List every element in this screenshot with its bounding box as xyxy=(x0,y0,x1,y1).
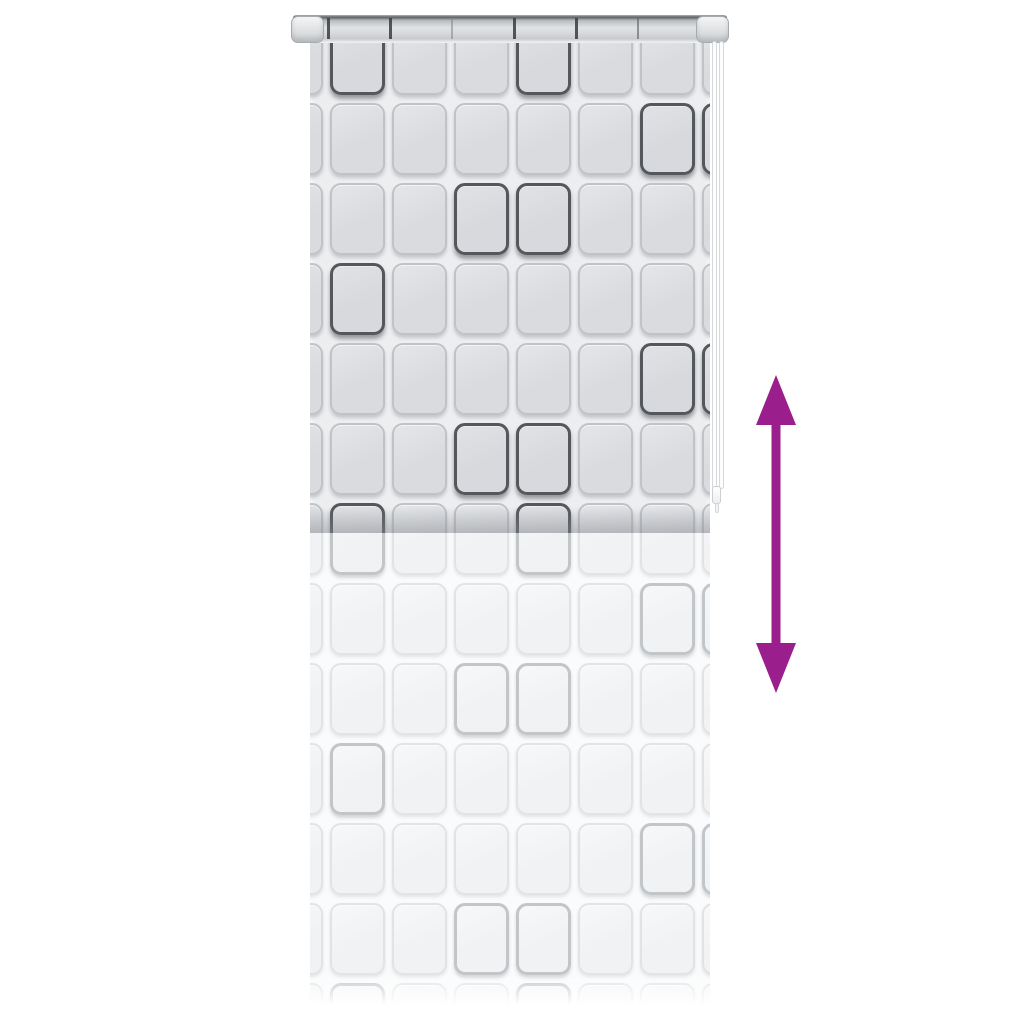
pattern-square xyxy=(640,343,695,415)
pattern-square xyxy=(516,983,571,1008)
rail-seam xyxy=(327,18,330,39)
pattern-square xyxy=(516,423,571,495)
pattern-square xyxy=(702,263,710,335)
pattern-square xyxy=(578,903,633,975)
pattern-square xyxy=(330,743,385,815)
pattern-square xyxy=(702,35,710,95)
pattern-square xyxy=(392,263,447,335)
pattern-square xyxy=(516,663,571,735)
pattern-square xyxy=(310,583,323,655)
pattern-square xyxy=(454,263,509,335)
pattern-square xyxy=(640,423,695,495)
pattern-square xyxy=(578,663,633,735)
rail-seam xyxy=(575,18,578,39)
pattern-square xyxy=(702,423,710,495)
rail-seam xyxy=(451,18,453,39)
pattern-square xyxy=(702,103,710,175)
pattern-square xyxy=(330,663,385,735)
pattern-square xyxy=(516,743,571,815)
pattern-square xyxy=(392,743,447,815)
pull-cord xyxy=(720,42,723,488)
pattern-square xyxy=(310,663,323,735)
square-pattern-lower xyxy=(310,533,710,1008)
pattern-square xyxy=(640,983,695,1008)
pattern-square xyxy=(640,823,695,895)
pattern-square xyxy=(330,583,385,655)
pattern-square xyxy=(578,503,633,533)
pattern-square xyxy=(702,743,710,815)
pattern-square xyxy=(578,343,633,415)
pattern-square xyxy=(310,103,323,175)
pattern-square xyxy=(702,503,710,533)
pattern-square xyxy=(392,533,447,575)
pattern-square xyxy=(330,823,385,895)
pattern-square xyxy=(640,103,695,175)
pattern-square xyxy=(310,503,323,533)
pattern-square xyxy=(702,823,710,895)
pattern-square xyxy=(516,903,571,975)
blind-fabric xyxy=(310,35,710,1008)
pattern-square xyxy=(516,35,571,95)
pattern-square xyxy=(578,983,633,1008)
pattern-square xyxy=(702,983,710,1008)
pattern-square xyxy=(330,423,385,495)
pattern-square xyxy=(392,503,447,533)
roller-rail xyxy=(293,15,727,43)
pattern-square xyxy=(392,35,447,95)
product-image xyxy=(0,0,1024,1024)
rail-seam xyxy=(637,18,639,39)
pattern-square xyxy=(578,35,633,95)
pattern-square xyxy=(702,583,710,655)
pattern-square xyxy=(310,903,323,975)
pattern-square xyxy=(454,743,509,815)
pattern-square xyxy=(640,183,695,255)
pattern-square xyxy=(310,743,323,815)
cord-tassel xyxy=(712,486,721,504)
pattern-square xyxy=(392,423,447,495)
pattern-square xyxy=(392,663,447,735)
pattern-square xyxy=(330,103,385,175)
pattern-square xyxy=(516,343,571,415)
pattern-square xyxy=(454,533,509,575)
pattern-square xyxy=(454,983,509,1008)
pattern-square xyxy=(392,983,447,1008)
pattern-square xyxy=(454,663,509,735)
pattern-square xyxy=(702,663,710,735)
pattern-square xyxy=(454,503,509,533)
pattern-square xyxy=(640,503,695,533)
pattern-square xyxy=(702,343,710,415)
pattern-square xyxy=(578,583,633,655)
rail-end-cap-left xyxy=(291,16,324,43)
pull-cord xyxy=(713,42,716,488)
pattern-square xyxy=(702,533,710,575)
pattern-square xyxy=(578,823,633,895)
pattern-square xyxy=(516,103,571,175)
pattern-square xyxy=(330,533,385,575)
pattern-square xyxy=(330,983,385,1008)
pattern-square xyxy=(516,503,571,533)
pattern-square xyxy=(640,743,695,815)
pattern-square xyxy=(454,103,509,175)
pattern-square xyxy=(702,903,710,975)
pattern-square xyxy=(454,903,509,975)
height-adjust-arrow xyxy=(745,371,807,697)
pattern-square xyxy=(310,533,323,575)
pattern-square xyxy=(454,423,509,495)
pattern-square xyxy=(578,103,633,175)
pattern-square xyxy=(640,263,695,335)
pattern-square xyxy=(330,503,385,533)
pattern-square xyxy=(330,343,385,415)
pattern-square xyxy=(392,343,447,415)
pattern-square xyxy=(454,823,509,895)
pattern-square xyxy=(578,183,633,255)
pattern-square xyxy=(640,583,695,655)
pattern-square xyxy=(310,823,323,895)
pattern-square xyxy=(702,183,710,255)
pattern-square xyxy=(516,533,571,575)
pattern-square xyxy=(454,583,509,655)
pattern-square xyxy=(578,263,633,335)
rail-seam xyxy=(389,18,392,39)
pattern-square xyxy=(330,183,385,255)
pattern-square xyxy=(640,903,695,975)
rail-seam xyxy=(513,18,516,39)
pattern-square xyxy=(516,583,571,655)
pattern-square xyxy=(392,903,447,975)
pattern-square xyxy=(578,423,633,495)
square-pattern-upper xyxy=(310,35,710,533)
pattern-square xyxy=(310,983,323,1008)
pattern-square xyxy=(392,183,447,255)
pattern-square xyxy=(310,423,323,495)
pattern-square xyxy=(392,823,447,895)
blind-upper-section xyxy=(310,35,710,533)
pattern-square xyxy=(330,263,385,335)
pattern-square xyxy=(330,35,385,95)
pattern-square xyxy=(516,263,571,335)
rail-end-cap-right xyxy=(696,16,729,43)
pattern-square xyxy=(454,35,509,95)
pattern-square xyxy=(454,343,509,415)
pattern-square xyxy=(516,183,571,255)
pattern-square xyxy=(578,533,633,575)
cord-tassel-tip xyxy=(715,503,719,513)
pattern-square xyxy=(640,35,695,95)
pattern-square xyxy=(640,663,695,735)
pattern-square xyxy=(516,823,571,895)
pattern-square xyxy=(454,183,509,255)
pattern-square xyxy=(578,743,633,815)
pattern-square xyxy=(310,343,323,415)
pattern-square xyxy=(310,183,323,255)
pattern-square xyxy=(330,903,385,975)
pattern-square xyxy=(310,263,323,335)
pattern-square xyxy=(392,583,447,655)
blind-lower-section xyxy=(310,533,710,1008)
pattern-square xyxy=(310,35,323,95)
pattern-square xyxy=(392,103,447,175)
pattern-square xyxy=(640,533,695,575)
